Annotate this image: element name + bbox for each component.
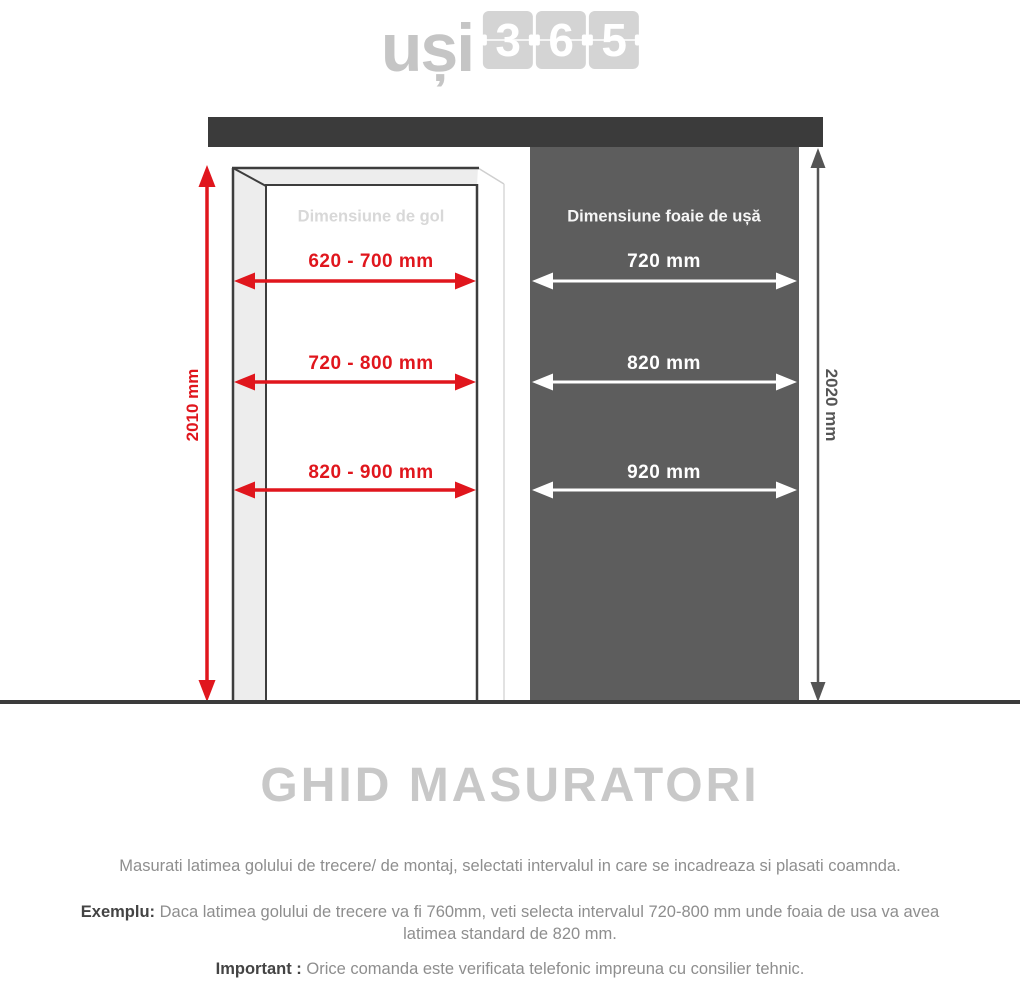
example-label: Exemplu: [81, 903, 155, 921]
example-body: Daca latimea golului de trecere va fi 76… [160, 903, 940, 943]
leaf-height-label: 2020 mm [821, 369, 841, 442]
gap-width-label: 720 - 800 mm [308, 353, 433, 375]
gap-width-arrowhead [455, 273, 476, 290]
gap-width-label: 620 - 700 mm [308, 251, 433, 273]
page-title: GHID MASURATORI [0, 758, 1020, 813]
gap-height-arrowhead-bottom [199, 680, 216, 702]
floor-line [0, 700, 1020, 704]
measurement-diagram: Dimensiune de gol Dimensiune foaie de uș… [0, 0, 1020, 710]
page: uși 3 6 5 [0, 0, 1020, 989]
leaf-height-arrowhead-bottom [811, 682, 826, 702]
leaf-dimension-title: Dimensiune foaie de ușă [567, 208, 760, 227]
important-label: Important : [216, 960, 302, 978]
door-frame-top-face [233, 167, 478, 186]
gap-width-arrowhead [455, 482, 476, 499]
leaf-width-label: 720 mm [627, 251, 701, 273]
leaf-height-arrowhead-top [811, 148, 826, 168]
important-text: Important : Orice comanda este verificat… [0, 960, 1020, 979]
wall-lintel [208, 117, 823, 147]
door-leaf-panel [530, 147, 799, 703]
door-frame-left-jamb [233, 167, 266, 701]
door-frame-back-diagonal [478, 168, 504, 184]
gap-height-label: 2010 mm [183, 369, 203, 442]
gap-width-label: 820 - 900 mm [308, 462, 433, 484]
gap-dimension-title: Dimensiune de gol [298, 208, 445, 227]
important-body: Orice comanda este verificata telefonic … [306, 960, 804, 978]
example-text: Exemplu: Daca latimea golului de trecere… [80, 901, 940, 946]
gap-height-arrowhead-top [199, 165, 216, 187]
intro-text: Masurati latimea golului de trecere/ de … [0, 857, 1020, 876]
leaf-width-label: 920 mm [627, 462, 701, 484]
gap-width-arrowhead [455, 374, 476, 391]
leaf-width-label: 820 mm [627, 353, 701, 375]
diagram-graphics [0, 0, 1020, 710]
